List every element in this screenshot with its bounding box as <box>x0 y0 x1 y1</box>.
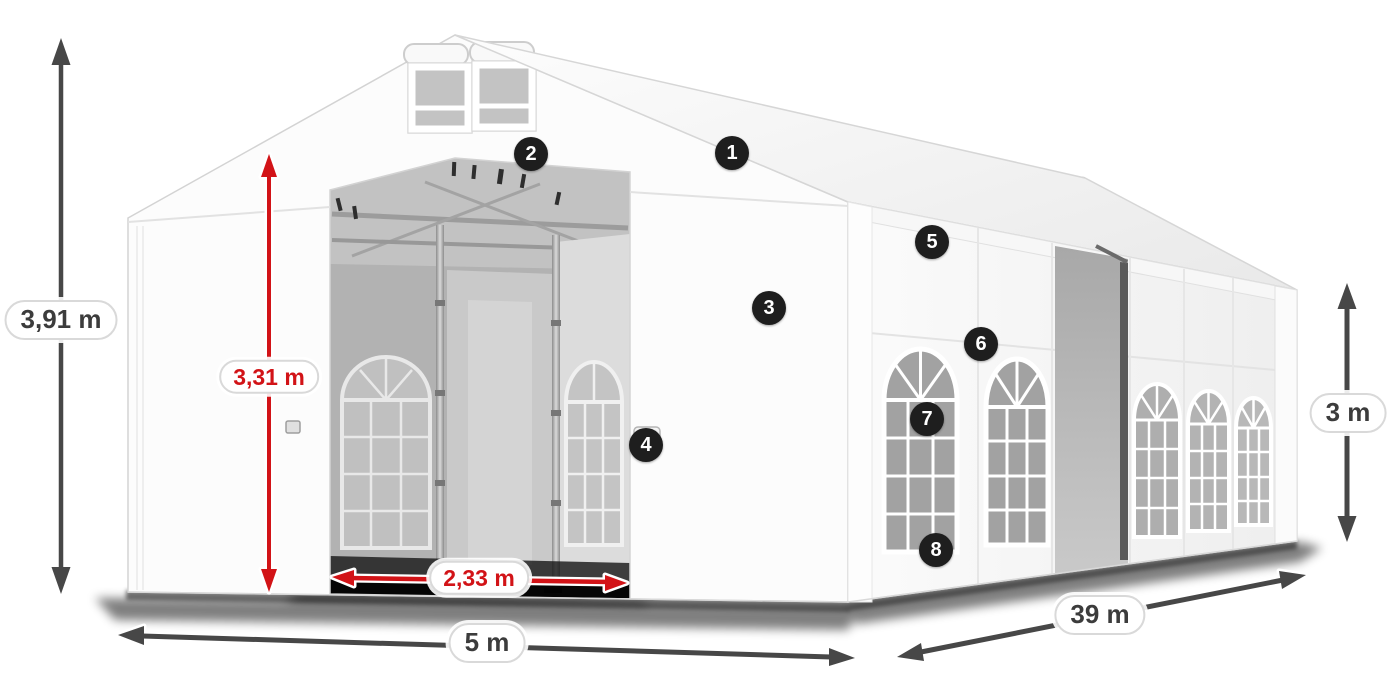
callout-badge-4: 4 <box>629 428 663 462</box>
callout-badge-7: 7 <box>910 402 944 436</box>
tent-interior <box>330 158 630 599</box>
tent-3d-render <box>0 0 1400 700</box>
dim-label-tent-width: 5 m <box>449 623 526 663</box>
dim-label-tent-length: 39 m <box>1054 595 1145 635</box>
callout-badge-6: 6 <box>964 327 998 361</box>
dim-label-total-height: 3,91 m <box>5 300 118 340</box>
callout-badge-2: 2 <box>514 137 548 171</box>
callout-badge-5: 5 <box>915 225 949 259</box>
interior-window-right <box>566 362 622 545</box>
side-door-opening <box>1055 246 1128 574</box>
door-handle-left <box>286 421 300 433</box>
callout-badge-8: 8 <box>919 533 953 567</box>
interior-window-left <box>342 357 430 548</box>
callout-badge-1: 1 <box>715 136 749 170</box>
tent-dimension-diagram: 3,91 m 3,31 m 2,33 m 5 m 39 m 3 m 1 2 3 … <box>0 0 1400 700</box>
dim-label-inner-height: 3,31 m <box>219 360 319 394</box>
dim-label-entrance-width: 2,33 m <box>429 561 529 595</box>
dim-label-side-height: 3 m <box>1310 393 1387 433</box>
callout-badge-3: 3 <box>752 291 786 325</box>
